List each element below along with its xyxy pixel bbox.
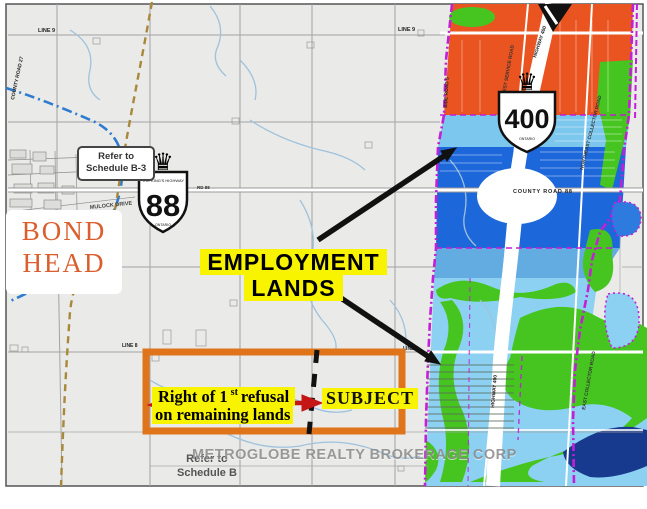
- refer-b-line2: Schedule B: [177, 466, 237, 480]
- subject-label: SUBJECT: [322, 388, 418, 409]
- refusal-text-post: refusal: [238, 388, 292, 406]
- shield-88-number: 88: [146, 188, 180, 223]
- refusal-text-pre: Right of 1: [155, 388, 231, 406]
- employment-line2: LANDS: [244, 275, 342, 301]
- road-label-line9-right: LINE 9: [398, 27, 415, 33]
- employment-lands-label: EMPLOYMENT LANDS: [191, 249, 396, 301]
- refer-b3-line1: Refer to: [86, 151, 146, 163]
- road-label-line9-left: LINE 9: [38, 28, 55, 34]
- employment-line1: EMPLOYMENT: [200, 249, 386, 275]
- bond-head-label: BOND HEAD: [8, 215, 120, 280]
- right-of-refusal-label: Right of 1st refusal on remaining lands: [152, 387, 295, 424]
- road-label-line8-left: LINE 8: [122, 343, 138, 349]
- brokerage-watermark: METROGLOBE REALTY BROKERAGE CORP: [192, 447, 517, 463]
- refusal-line2: on remaining lands: [152, 406, 293, 424]
- shield-400-number: 400: [504, 104, 549, 134]
- bond-head-line2: HEAD: [8, 247, 120, 279]
- refer-b3-line2: Schedule B-3: [86, 163, 146, 175]
- refusal-line1: Right of 1st refusal: [152, 387, 295, 406]
- shield-400-province: ONTARIO: [519, 137, 535, 141]
- planning-map-screenshot: LINE 9 LINE 9 LINE 8 LINE 8 COUNTY ROAD …: [0, 0, 647, 509]
- refer-schedule-b3-box: Refer to Schedule B-3: [77, 146, 155, 181]
- refusal-text-sup: st: [231, 387, 238, 398]
- shield-88-province: ONTARIO: [155, 223, 171, 227]
- road-label-county-road-88: COUNTY ROAD 88: [513, 189, 573, 195]
- road-label-rd88: RD 88: [197, 185, 210, 190]
- bond-head-line1: BOND: [8, 215, 120, 247]
